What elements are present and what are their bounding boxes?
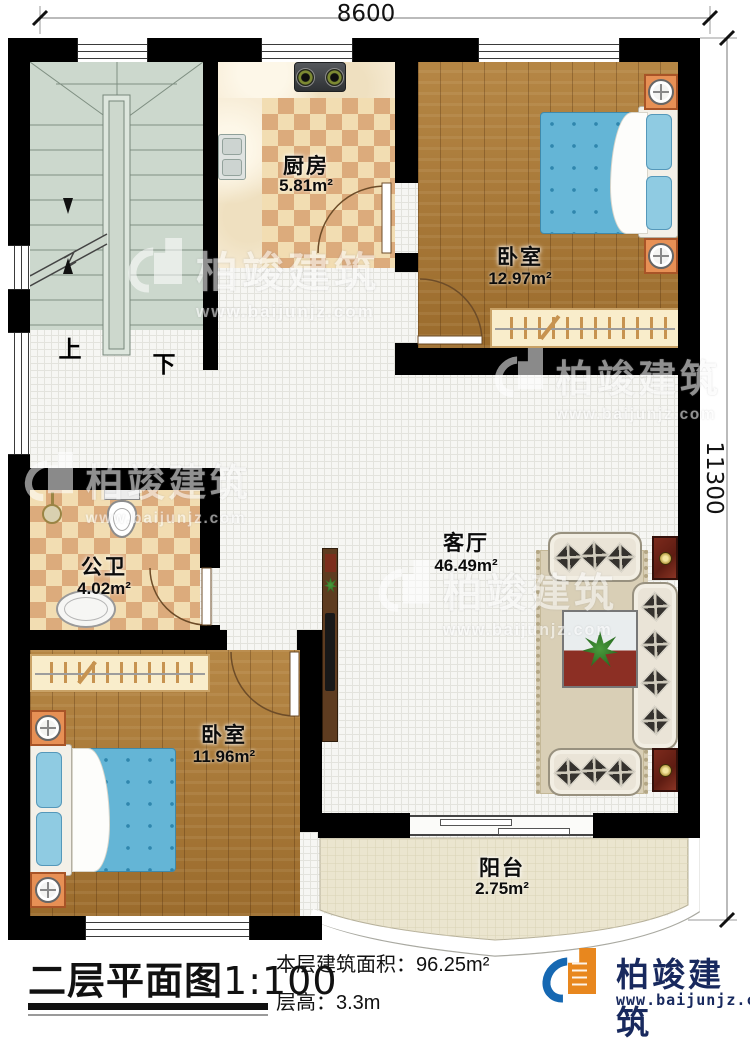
tv-icon	[325, 613, 335, 691]
room-label-living: 客厅	[443, 527, 489, 557]
title-underline	[28, 1003, 268, 1010]
nightstand	[30, 872, 66, 908]
burner-icon	[296, 68, 315, 87]
wall	[297, 630, 322, 650]
stairs-down-label: 下	[153, 345, 176, 379]
lamp-icon	[648, 79, 674, 105]
wardrobe-bottom	[30, 654, 210, 692]
wall	[318, 813, 410, 838]
brand-logo-icon	[546, 948, 602, 1010]
window	[478, 38, 620, 62]
bed-bottom-pillow	[36, 812, 62, 866]
brand-website: www.baijunjz.com	[616, 991, 750, 1009]
floor-height-text: 层高：3.3m	[276, 986, 380, 1015]
decor-item	[325, 554, 336, 572]
lamp-icon	[35, 715, 61, 741]
nightstand	[30, 710, 66, 746]
stairs	[30, 62, 203, 362]
tv-cabinet	[322, 548, 338, 742]
wall	[8, 630, 227, 650]
wall	[395, 253, 418, 272]
nightstand	[644, 74, 678, 110]
stove	[294, 62, 346, 92]
wall	[395, 62, 418, 183]
coffee-table	[562, 610, 638, 688]
sofa-bottom	[548, 748, 642, 796]
sofa-top	[548, 532, 642, 582]
wall	[593, 813, 700, 838]
window	[261, 38, 353, 62]
knob-icon	[659, 552, 672, 565]
lamp-icon	[648, 243, 674, 269]
wall	[678, 38, 700, 838]
floor-area-text: 本层建筑面积：96.25m²	[276, 948, 489, 977]
burner-icon	[325, 68, 344, 87]
room-area-bedroom-top: 12.97m²	[488, 269, 551, 289]
side-table	[652, 748, 678, 792]
wall	[203, 62, 218, 370]
room-area-bathroom: 4.02m²	[77, 579, 131, 599]
bed-top-pillow	[646, 176, 672, 230]
kitchen-sink	[218, 134, 246, 180]
sink-basin	[222, 138, 242, 155]
title-underline-thin	[28, 1014, 268, 1016]
room-area-kitchen: 5.81m²	[279, 176, 333, 196]
stairs-up-label: 上	[59, 330, 82, 364]
bed-bottom-pillow	[36, 752, 62, 808]
plant-icon	[324, 577, 337, 593]
wall	[300, 650, 322, 832]
dimension-top: 8600	[337, 1, 396, 27]
room-label-bedroom-bottom: 卧室	[201, 719, 247, 749]
wall	[395, 348, 700, 375]
wall	[8, 468, 220, 490]
sink-basin	[222, 159, 242, 176]
shower-icon	[42, 504, 62, 524]
sliding-door	[410, 815, 593, 836]
bed-top-pillow	[646, 114, 672, 170]
room-area-balcony: 2.75m²	[475, 879, 529, 899]
lamp-icon	[35, 877, 61, 903]
room-label-bedroom-top: 卧室	[497, 241, 543, 271]
plant-icon	[582, 631, 618, 667]
kitchen-counter-left	[218, 98, 262, 268]
nightstand	[644, 238, 678, 274]
window	[8, 245, 30, 290]
side-table	[652, 536, 678, 580]
wardrobe-top	[490, 308, 680, 348]
room-label-bathroom: 公卫	[81, 551, 127, 581]
floor-plan-canvas: 厨房 5.81m² 卧室 12.97m² 客厅 46.49m² 公卫 4.02m…	[0, 0, 750, 1029]
wall	[200, 468, 220, 568]
sofa-main	[632, 582, 678, 750]
room-area-bedroom-bottom: 11.96m²	[193, 747, 255, 767]
room-area-living: 46.49m²	[434, 556, 497, 576]
window	[77, 38, 148, 62]
window	[85, 916, 250, 940]
dimension-right: 11300	[701, 441, 727, 514]
knob-icon	[659, 764, 672, 777]
window	[8, 332, 30, 455]
room-label-balcony: 阳台	[479, 852, 525, 882]
